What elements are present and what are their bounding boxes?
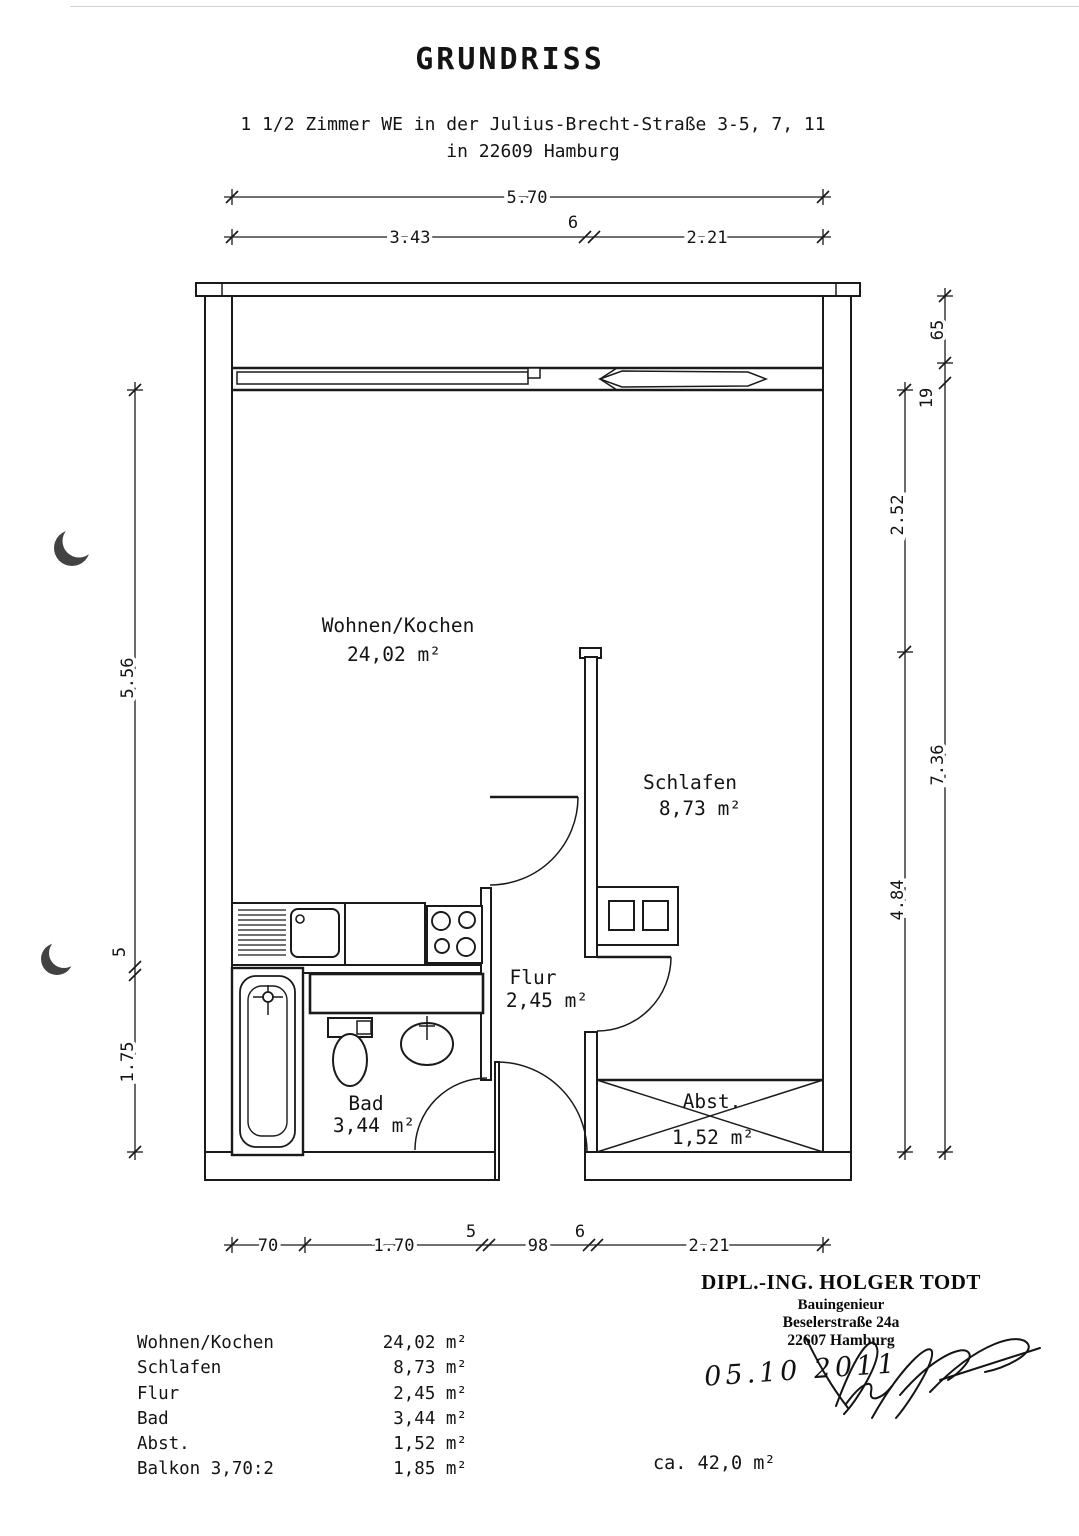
room-area-bath: 3,44 m² [333, 1114, 415, 1137]
svg-text:2.52: 2.52 [888, 495, 908, 536]
svg-text:6: 6 [575, 1222, 585, 1242]
room-label-storage: Abst. [683, 1090, 742, 1113]
right-exterior-wall [823, 296, 851, 1180]
svg-text:1.75: 1.75 [118, 1042, 138, 1083]
row-label: Bad [137, 1407, 347, 1432]
electrical-panel-meter-right [643, 901, 668, 930]
kitchen-counter-unit [345, 903, 425, 965]
left-exterior-wall [205, 296, 232, 1180]
bath-shelf-unit [310, 974, 483, 1013]
fixed-window-glazing [237, 372, 528, 384]
table-row: Schlafen8,73 m² [137, 1356, 467, 1381]
row-value: 1,85 m² [347, 1457, 467, 1482]
svg-text:65: 65 [928, 320, 948, 340]
svg-text:2.21: 2.21 [687, 228, 728, 248]
row-value: 24,02 m² [347, 1331, 467, 1356]
dim-chain-right-outer: 65 19 7.36 [917, 288, 953, 1160]
svg-text:7.36: 7.36 [928, 745, 948, 786]
table-row: Balkon 3,70:21,85 m² [137, 1457, 467, 1482]
stamp-profession: Bauingenieur [700, 1297, 982, 1314]
row-label: Balkon 3,70:2 [137, 1457, 347, 1482]
dim-chain-bottom: 70 1.70 5 98 6 2.21 [224, 1222, 831, 1256]
drawing-page: GRUNDRISS 1 1/2 Zimmer WE in der Julius-… [0, 0, 1079, 1536]
svg-text:6: 6 [568, 213, 578, 233]
row-value: 2,45 m² [347, 1382, 467, 1407]
svg-text:5: 5 [466, 1222, 476, 1242]
table-row: Abst.1,52 m² [137, 1432, 467, 1457]
svg-text:98: 98 [528, 1236, 548, 1256]
entrance-door-leaf [495, 1062, 499, 1180]
row-value: 1,52 m² [347, 1432, 467, 1457]
dim-chain-top-split: 3.43 6 2.21 [224, 213, 831, 248]
room-area-living: 24,02 m² [347, 643, 441, 666]
row-value: 8,73 m² [347, 1356, 467, 1381]
bath-door-swing [415, 1078, 487, 1150]
total-area: ca. 42,0 m² [653, 1453, 776, 1474]
electrical-panel-meter-left [609, 901, 634, 930]
row-label: Schlafen [137, 1356, 347, 1381]
svg-text:5.56: 5.56 [118, 658, 138, 699]
balcony-parapet-wall [196, 283, 860, 296]
room-label-living: Wohnen/Kochen [322, 614, 475, 637]
stamp-city: 22607 Hamburg [700, 1332, 982, 1350]
toilet-bowl [333, 1034, 367, 1086]
svg-text:1.70: 1.70 [374, 1236, 415, 1256]
engineer-stamp: DIPL.-ING. HOLGER TODT Bauingenieur Bese… [700, 1270, 982, 1350]
bedroom-door-swing [597, 957, 671, 1031]
row-value: 3,44 m² [347, 1407, 467, 1432]
sink-tap [296, 915, 304, 923]
table-row: Bad3,44 m² [137, 1407, 467, 1432]
stamp-name: DIPL.-ING. HOLGER TODT [700, 1270, 982, 1295]
table-row: Wohnen/Kochen24,02 m² [137, 1331, 467, 1356]
dim-chain-left: 5.56 5 1.75 [110, 382, 143, 1160]
room-area-bedroom: 8,73 m² [659, 797, 741, 820]
table-row: Flur2,45 m² [137, 1382, 467, 1407]
svg-text:3.43: 3.43 [390, 228, 431, 248]
entrance-door-swing [497, 1062, 587, 1152]
room-label-hall: Flur [510, 966, 557, 989]
toilet-flush-button [357, 1021, 371, 1034]
hall-bedroom-wall-stub [585, 1032, 597, 1152]
row-label: Abst. [137, 1432, 347, 1457]
svg-text:5: 5 [110, 947, 130, 957]
svg-text:4.84: 4.84 [888, 880, 908, 921]
row-label: Wohnen/Kochen [137, 1331, 347, 1356]
hall-bedroom-wall [585, 657, 597, 957]
room-area-hall: 2,45 m² [506, 989, 588, 1012]
area-table: Wohnen/Kochen24,02 m² Schlafen8,73 m² Fl… [137, 1331, 467, 1483]
svg-text:70: 70 [258, 1236, 278, 1256]
room-label-bedroom: Schlafen [643, 771, 737, 794]
living-hall-door-swing [490, 797, 578, 885]
sliding-door-arrow [600, 371, 766, 387]
row-label: Flur [137, 1382, 347, 1407]
dim-chain-top-total: 5.70 [224, 188, 831, 208]
hole-punch-mark-bottom [41, 938, 79, 975]
svg-text:5.70: 5.70 [507, 188, 548, 208]
window-track-step [528, 368, 540, 378]
bottom-wall-right-segment [585, 1152, 851, 1180]
svg-text:19: 19 [917, 388, 937, 408]
dim-chain-right-inner: 2.52 4.84 [888, 382, 913, 1160]
room-area-storage: 1,52 m² [672, 1126, 754, 1149]
svg-text:2.21: 2.21 [689, 1236, 730, 1256]
stamp-street: Beselerstraße 24a [700, 1314, 982, 1332]
hole-punch-mark-top [54, 525, 96, 567]
room-label-bath: Bad [348, 1092, 383, 1115]
